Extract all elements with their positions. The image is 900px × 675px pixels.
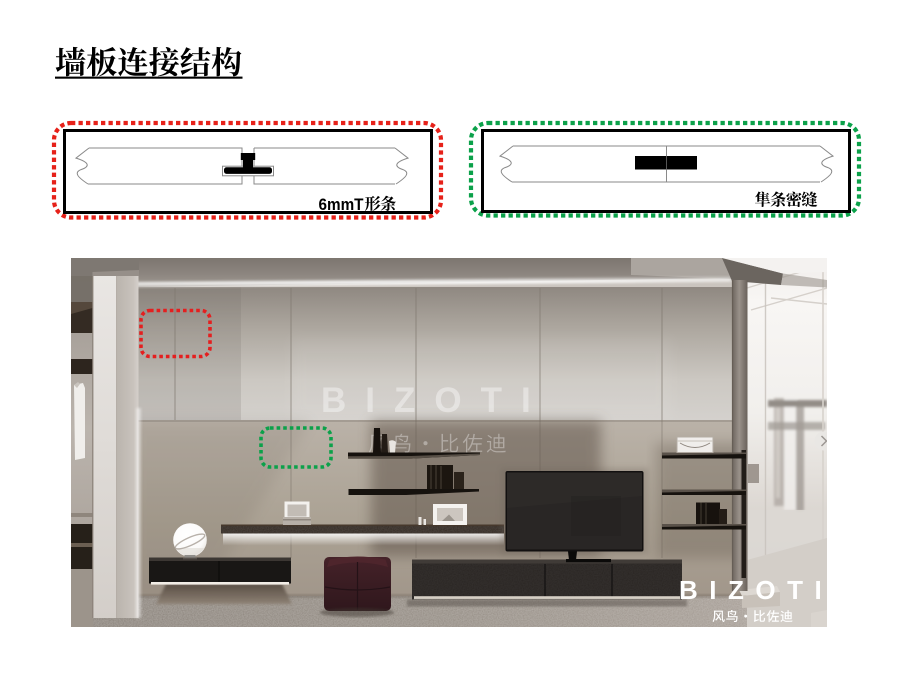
svg-text:BIZOTI: BIZOTI [679,575,833,605]
svg-text:6mmT: 6mmT [319,195,365,214]
svg-text:BIZOTI: BIZOTI [321,381,550,420]
